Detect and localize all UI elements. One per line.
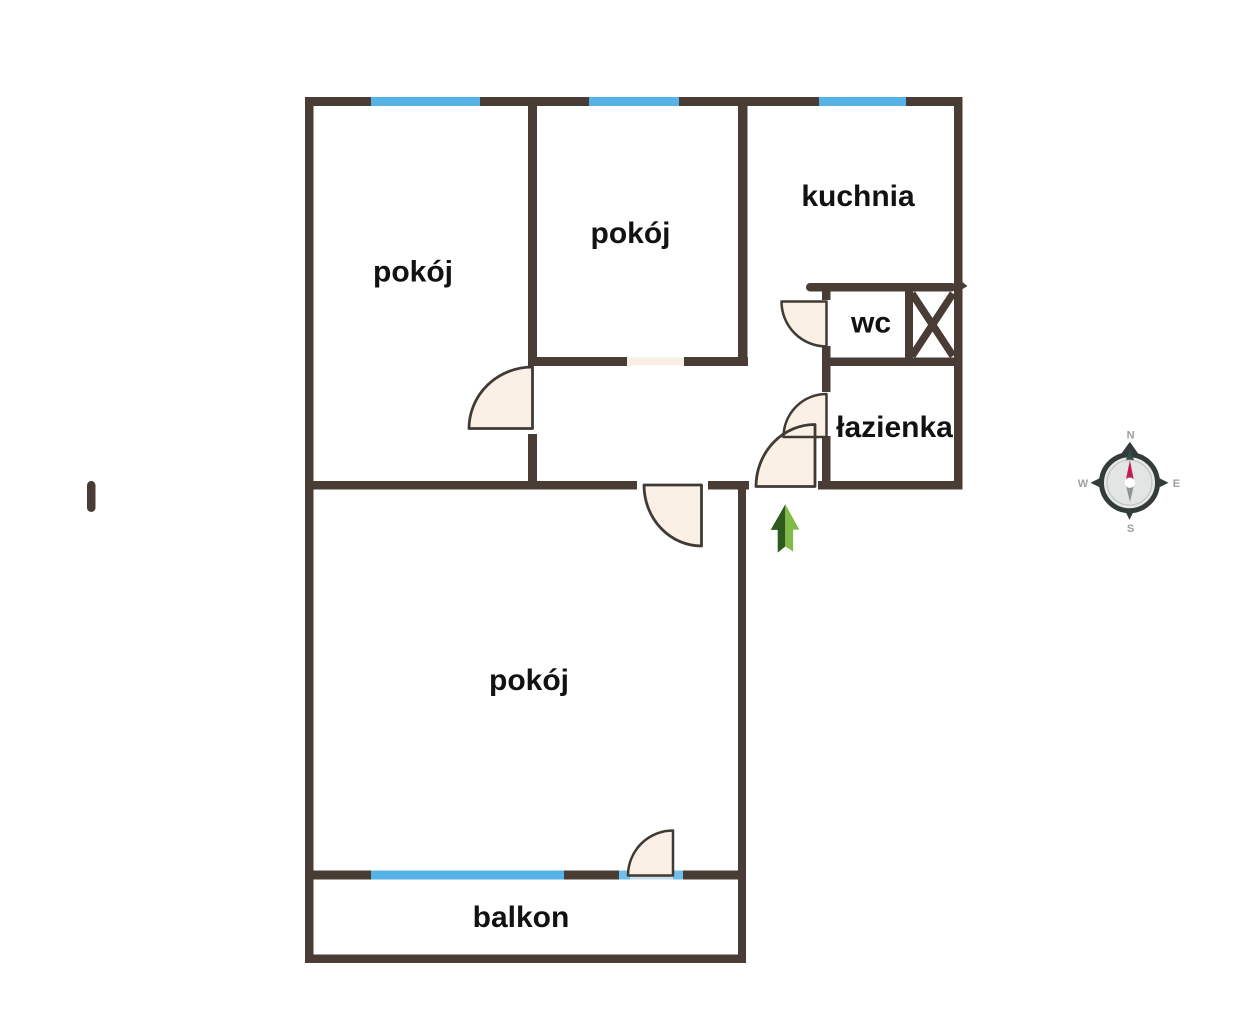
svg-text:N: N [1127, 430, 1135, 442]
svg-text:S: S [1127, 523, 1134, 535]
svg-text:pokój: pokój [489, 664, 569, 697]
svg-text:kuchnia: kuchnia [801, 180, 915, 213]
svg-text:pokój: pokój [591, 217, 671, 250]
svg-text:E: E [1173, 478, 1180, 490]
svg-text:W: W [1078, 478, 1089, 490]
svg-text:łazienka: łazienka [836, 411, 953, 444]
svg-text:wc: wc [850, 307, 891, 340]
svg-text:balkon: balkon [473, 901, 570, 934]
svg-text:pokój: pokój [373, 256, 453, 289]
